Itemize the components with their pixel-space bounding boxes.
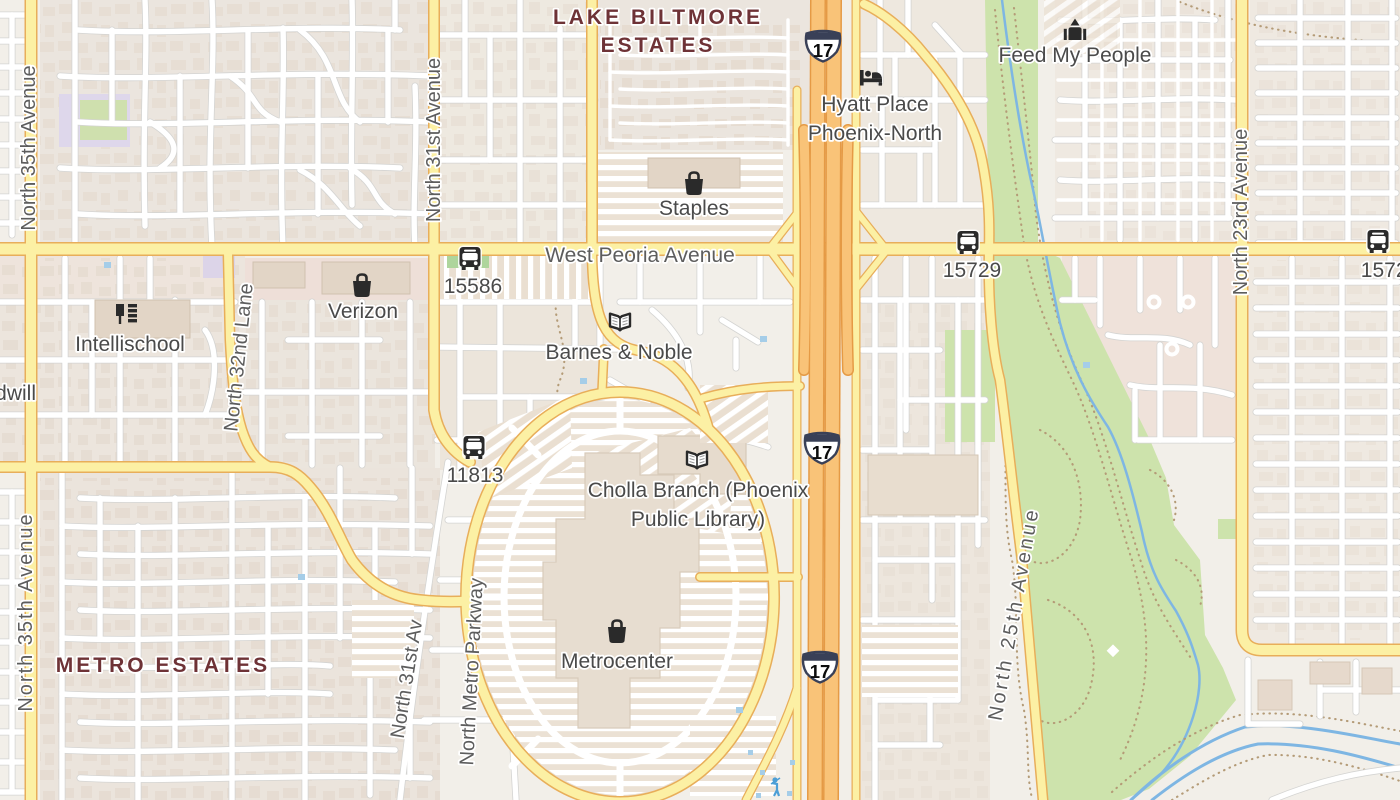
svg-text:North 23rd Avenue: North 23rd Avenue <box>1230 129 1252 295</box>
svg-text:Public Library): Public Library) <box>631 508 765 531</box>
svg-text:15729: 15729 <box>943 259 1001 282</box>
svg-text:Staples: Staples <box>659 197 729 220</box>
svg-text:METRO ESTATES: METRO ESTATES <box>56 654 270 677</box>
svg-text:LAKE BILTMORE: LAKE BILTMORE <box>553 6 763 29</box>
svg-text:15727: 15727 <box>1361 259 1400 282</box>
svg-text:Barnes & Noble: Barnes & Noble <box>545 341 692 364</box>
svg-text:North 35th Avenue: North 35th Avenue <box>15 512 37 711</box>
svg-text:15586: 15586 <box>444 275 502 298</box>
svg-text:17: 17 <box>813 40 834 61</box>
svg-text:North 35th Avenue: North 35th Avenue <box>18 65 40 230</box>
svg-text:17: 17 <box>812 442 833 463</box>
svg-text:Intellischool: Intellischool <box>75 333 185 356</box>
svg-text:ESTATES: ESTATES <box>601 34 716 57</box>
svg-text:Phoenix-North: Phoenix-North <box>808 122 942 145</box>
svg-text:Hyatt Place: Hyatt Place <box>821 93 928 116</box>
svg-text:West Peoria Avenue: West Peoria Avenue <box>545 244 735 267</box>
svg-text:17: 17 <box>810 661 831 682</box>
svg-text:11813: 11813 <box>447 464 504 487</box>
svg-text:Verizon: Verizon <box>328 300 398 323</box>
svg-text:dwill: dwill <box>0 382 36 405</box>
svg-text:Metrocenter: Metrocenter <box>561 650 673 673</box>
svg-text:Cholla Branch (Phoenix: Cholla Branch (Phoenix <box>588 479 809 502</box>
svg-text:Feed My People: Feed My People <box>999 44 1152 67</box>
svg-text:North 31st Avenue: North 31st Avenue <box>423 58 445 222</box>
